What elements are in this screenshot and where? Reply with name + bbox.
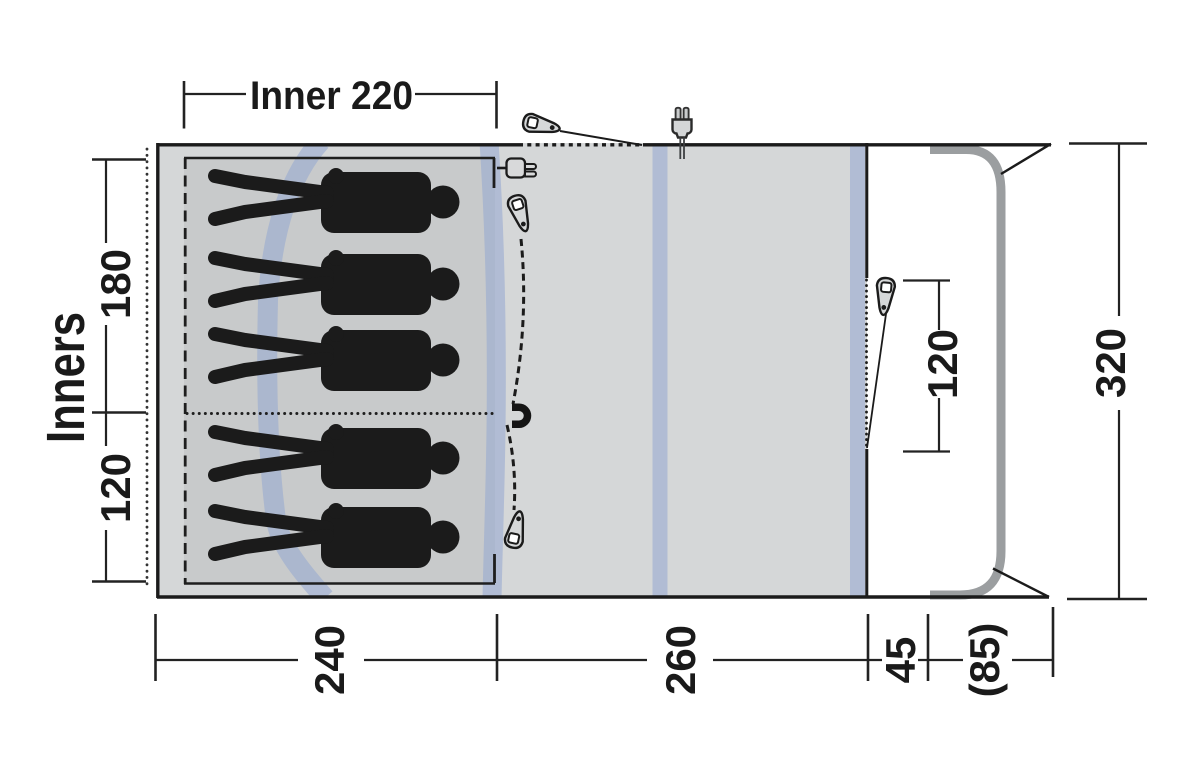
svg-text:260: 260 [657, 625, 704, 695]
svg-text:(85): (85) [961, 623, 1008, 698]
svg-text:45: 45 [877, 637, 924, 684]
svg-text:120: 120 [92, 453, 139, 523]
svg-text:180: 180 [92, 249, 139, 319]
svg-text:Inner 220: Inner 220 [250, 74, 413, 118]
svg-text:320: 320 [1087, 328, 1134, 398]
svg-text:Inners: Inners [36, 312, 96, 443]
svg-text:240: 240 [306, 625, 353, 695]
svg-text:120: 120 [919, 329, 966, 399]
